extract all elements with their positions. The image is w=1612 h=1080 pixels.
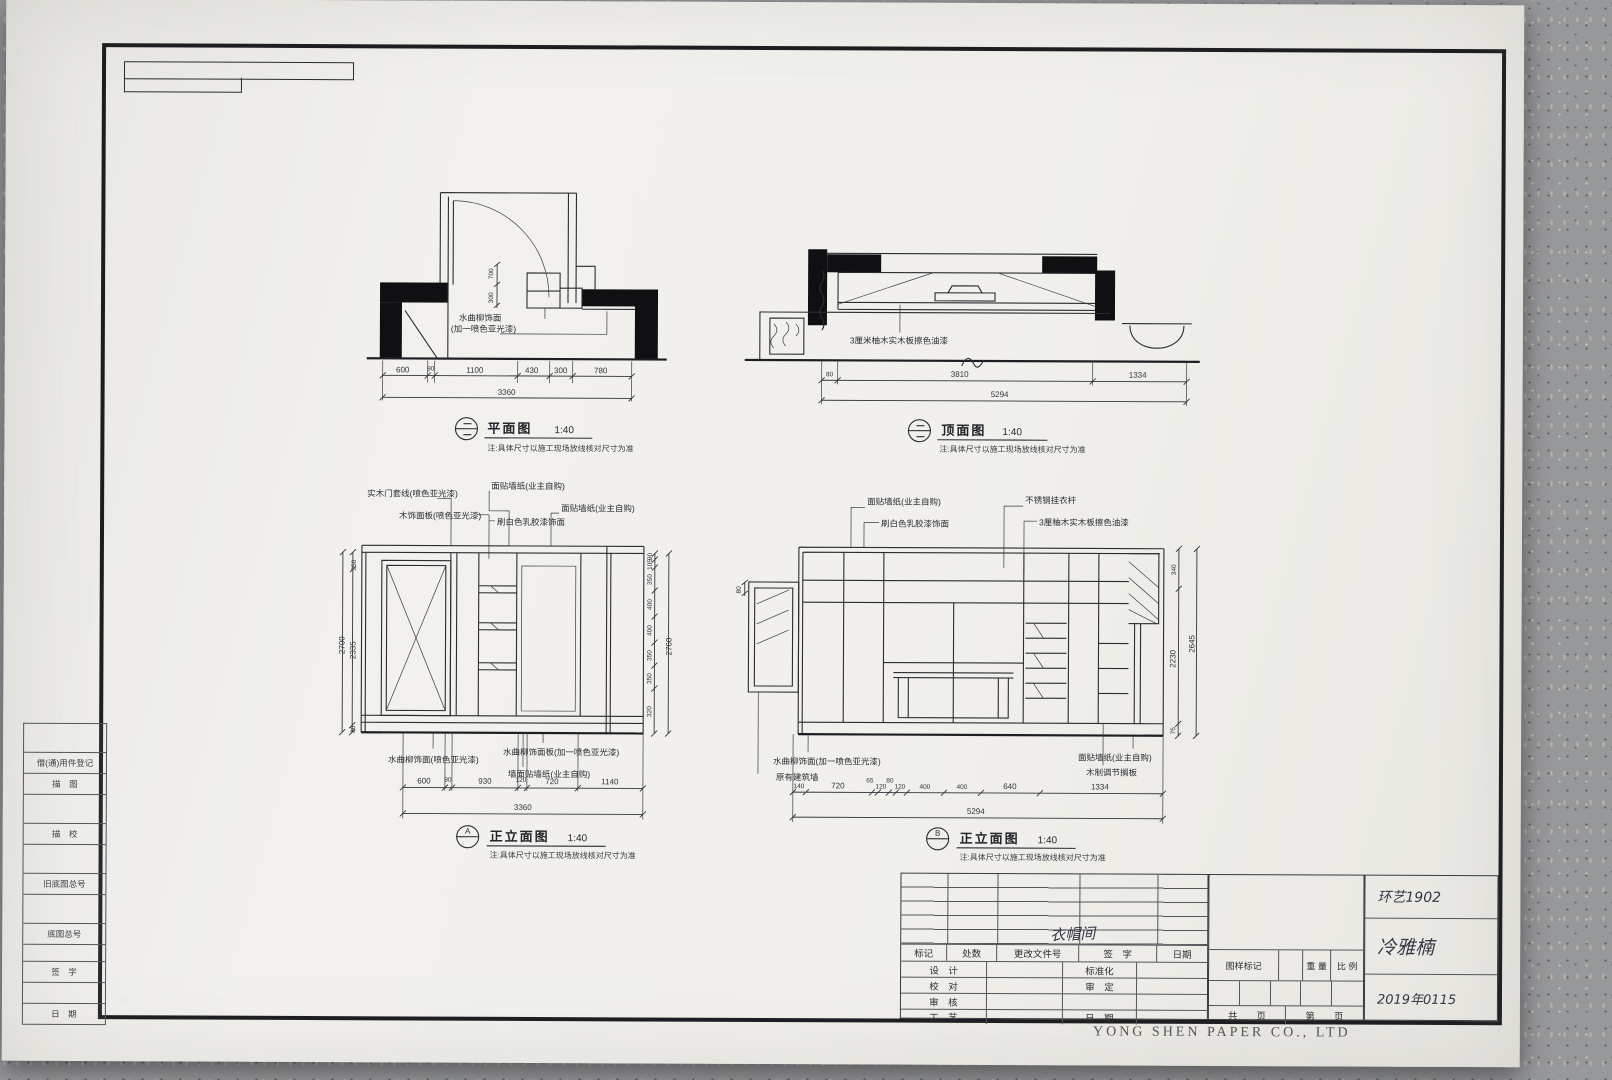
drawing-title: 正立面图	[960, 831, 1020, 846]
dim-label: 75	[1170, 727, 1177, 735]
row-label: 标准化	[1063, 962, 1137, 977]
elevation-ref-letter: B	[935, 829, 940, 838]
elevation-b-drawing: 面贴墙纸(业主自购) 刷白色乳胶漆饰面 不锈钢挂衣杆 3厘柚木实木板擦色油漆 水…	[737, 472, 1239, 894]
dim-label: 250	[351, 559, 358, 570]
dim-label: 1100	[466, 366, 484, 375]
elev-annotation: 水曲柳饰面(喷色亚光漆)	[388, 754, 479, 764]
drawing-scale: 1:40	[568, 833, 588, 844]
elevation-ref-letter: A	[465, 827, 471, 836]
dim-label: 1334	[1129, 371, 1147, 380]
dim-label: 90	[427, 366, 435, 373]
drawing-note: 注:具体尺寸以施工现场放线核对尺寸为准	[490, 850, 636, 861]
elevation-a-drawing: 实木门套线(喷色亚光漆) 木饰面板(喷色亚光漆) 面贴墙纸(业主自购) 刷白色乳…	[337, 470, 684, 892]
drawing-title: 顶面图	[941, 423, 986, 438]
dim-total-label: 2760	[664, 637, 673, 655]
dim-label: 120	[515, 777, 526, 784]
row-value	[987, 1010, 1063, 1024]
row-value	[1137, 963, 1207, 978]
handwritten-name-cell: 冷雅楠	[1365, 919, 1497, 976]
handwritten-class-cell: 环艺1902	[1365, 876, 1497, 920]
margin-label: 描 校	[52, 828, 78, 840]
pages-label: 共	[1228, 1008, 1238, 1022]
revision-header-row: 标记 处数 更改文件号 签 字 日期	[901, 944, 1207, 963]
pages-label: 页	[1334, 1008, 1344, 1022]
elev-annotation: 3厘柚木实木板擦色油漆	[1039, 517, 1129, 527]
elev-annotation: 木饰面板(喷色亚光漆)	[399, 510, 481, 520]
title-block-row: 设 计 标准化	[901, 962, 1207, 979]
title-block-revision-table: 标记 处数 更改文件号 签 字 日期 设 计 标准化 校 对 审 定 审 核 工…	[900, 873, 1209, 1020]
photo-background: 水曲柳饰面 (加一喷色亚光漆) 700 300 600 90 1100 430 …	[0, 0, 1612, 1080]
plan-ref-symbol	[455, 418, 477, 440]
row-label	[1063, 994, 1137, 1009]
dim-label: 90	[647, 552, 654, 560]
margin-label: 底图总号	[47, 928, 81, 940]
margin-label: 旧底图总号	[43, 878, 86, 890]
margin-cell	[24, 724, 106, 753]
dim-total-label: 5294	[991, 390, 1009, 399]
drawing-note: 注:具体尺寸以施工现场放线核对尺寸为准	[960, 852, 1106, 863]
margin-cell: 底图总号	[23, 924, 105, 945]
elev-annotation: 水曲柳饰面板(加一喷色亚光漆)	[503, 747, 619, 758]
blank-cell	[1301, 981, 1332, 1005]
revision-strip-box-2	[124, 77, 242, 93]
margin-cell	[24, 795, 106, 824]
margin-cell	[23, 945, 105, 962]
small-cells-row	[1209, 981, 1363, 1007]
dim-label: 140	[793, 783, 804, 790]
handwritten-date-cell: 2019年0115	[1365, 975, 1497, 1023]
title-block-right: 图样标记 重 量 比 例 共 页 第 页	[1208, 874, 1365, 1021]
margin-label: 描 图	[52, 778, 78, 790]
row-value	[987, 994, 1063, 1009]
plan-left-walls	[380, 282, 658, 359]
drawing-sheet: 水曲柳饰面 (加一喷色亚光漆) 700 300 600 90 1100 430 …	[2, 0, 1525, 1067]
row-value	[1137, 995, 1207, 1010]
dim-label: 400	[956, 784, 967, 791]
revision-header-cell: 签 字	[1079, 945, 1157, 961]
dim-label: 600	[417, 776, 431, 785]
elev-annotation: 不锈钢挂衣杆	[1025, 495, 1077, 505]
revision-header-cell: 日期	[1157, 946, 1207, 962]
elev-annotation: 面贴墙纸(业主自购)	[1078, 752, 1152, 762]
dim-label: 300	[554, 366, 568, 375]
ceiling-plan-drawing: 3厘米柚木实木板擦色油漆 80 3810 1334 5294 顶面图 1:40 …	[729, 212, 1210, 479]
title-block-blank-box	[1209, 875, 1363, 951]
pages-label: 第	[1305, 1008, 1315, 1022]
title-block-row: 审 核	[901, 994, 1207, 1011]
row-value	[987, 978, 1063, 993]
margin-label: 借(通)用件登记	[37, 757, 94, 769]
plan-annotation-line1: 水曲柳饰面	[459, 313, 502, 323]
dim-label: 1140	[601, 777, 619, 786]
dim-total-label: 5294	[967, 807, 985, 816]
dim-label: 640	[1003, 782, 1017, 791]
plan-annotation-line2: (加一喷色亚光漆)	[451, 324, 516, 334]
handwritten-room-name: 衣帽间	[1050, 922, 1096, 945]
dim-label: 930	[478, 777, 492, 786]
elev-annotation: 水曲柳饰面(加一喷色亚光漆)	[773, 756, 881, 766]
mark-weight-scale-row: 图样标记 重 量 比 例	[1209, 950, 1363, 982]
elev-annotation: 面贴墙纸(业主自购)	[561, 503, 635, 513]
drawing-scale: 1:40	[1038, 835, 1058, 846]
drawing-scale: 1:40	[554, 425, 574, 436]
dim-label: 350	[646, 673, 653, 684]
dim-label: 1334	[1091, 782, 1109, 791]
margin-label: 日 期	[51, 1008, 77, 1020]
dim-label: 65	[866, 777, 874, 784]
dim-label: 320	[646, 706, 653, 717]
dim-label: 350	[646, 650, 653, 661]
dim-label: 350	[647, 574, 654, 585]
row-label: 审 核	[901, 994, 987, 1009]
dim-label: 720	[831, 781, 845, 790]
dim-label: 80	[826, 371, 834, 378]
dim-label: 700	[488, 268, 495, 279]
row-value	[987, 962, 1063, 977]
dim-label: 80	[886, 778, 894, 785]
paper-brand-text: YONG SHEN PAPER CO., LTD	[1032, 1024, 1412, 1042]
pages-cell: 第 页	[1286, 1006, 1363, 1024]
dim-label: 430	[525, 366, 539, 375]
blank-cell	[1332, 981, 1363, 1005]
elev-annotation: 实木门套线(喷色亚光漆)	[367, 488, 458, 498]
margin-label: 签 字	[51, 966, 77, 978]
revision-header-cell: 更改文件号	[997, 945, 1079, 961]
margin-cell	[23, 895, 105, 924]
handwritten-class: 环艺1902	[1377, 887, 1441, 907]
elevation-ref-symbol: A	[457, 826, 479, 848]
title-block-row: 校 对 审 定	[901, 978, 1207, 995]
elev-a-linework	[339, 490, 672, 819]
row-label: 日 期	[1063, 1010, 1137, 1024]
margin-cell	[24, 845, 106, 874]
title-block-row: 工 艺 日 期	[901, 1010, 1207, 1025]
elev-annotation: 刷白色乳胶漆饰面	[881, 519, 950, 529]
dim-total-label: 3360	[514, 803, 532, 812]
margin-cell: 借(通)用件登记	[24, 753, 106, 774]
plan-right-walls	[808, 249, 1115, 326]
plan-view-drawing: 水曲柳饰面 (加一喷色亚光漆) 700 300 600 90 1100 430 …	[354, 160, 685, 476]
row-value	[1137, 1011, 1207, 1025]
margin-cell: 签 字	[23, 962, 105, 983]
handwritten-date: 2019年0115	[1377, 989, 1456, 1008]
dim-label: 600	[396, 365, 410, 374]
dim-label: 340	[1171, 564, 1178, 575]
dim-total-label: 2645	[1187, 634, 1196, 652]
elev-annotation: 面贴墙纸(业主自购)	[867, 496, 941, 506]
dim-label: 400	[919, 784, 930, 791]
dim-label: 400	[647, 625, 654, 636]
drawing-note: 注:具体尺寸以施工现场放线核对尺寸为准	[939, 444, 1085, 455]
dim-total-label: 2700	[337, 636, 346, 654]
plan-ref-symbol	[908, 420, 930, 442]
revision-header-cell: 标记	[901, 945, 947, 961]
pages-label: 页	[1256, 1008, 1266, 1022]
drawing-scale: 1:40	[1002, 427, 1022, 438]
margin-cell: 描 校	[24, 824, 106, 845]
row-value	[1137, 979, 1207, 994]
row-label: 审 定	[1063, 978, 1137, 993]
dim-label: 90	[444, 777, 452, 784]
revision-header-cell: 处数	[947, 945, 997, 961]
drawing-title: 正立面图	[490, 829, 550, 844]
dim-label: 780	[594, 366, 608, 375]
dim-label: 80	[736, 586, 743, 594]
dim-label: 720	[545, 777, 559, 786]
blank-cell	[1240, 981, 1271, 1005]
dim-label: 400	[647, 599, 654, 610]
margin-cell: 描 图	[24, 774, 106, 795]
blank-cell	[1279, 950, 1303, 980]
dim-label: 3810	[951, 370, 969, 379]
margin-cell: 日 期	[23, 1004, 105, 1025]
pages-cell: 共 页	[1209, 1006, 1286, 1024]
dim-label: 80	[350, 725, 357, 733]
scale-label: 比 例	[1331, 950, 1363, 980]
elev-annotation: 原有建筑墙	[776, 772, 819, 782]
dim-label: 300	[488, 292, 495, 303]
elev-annotation: 面贴墙纸(业主自购)	[491, 481, 565, 491]
elev-annotation: 木制调节搁板	[1086, 767, 1138, 777]
blank-cell	[1209, 981, 1240, 1005]
dim-label: 120	[894, 784, 905, 791]
row-label: 校 对	[901, 978, 987, 993]
row-label: 设 计	[901, 962, 987, 977]
elev-annotation: 刷白色乳胶漆饰面	[497, 517, 566, 527]
dim-label: 2230	[1168, 649, 1177, 667]
dim-label: 105	[647, 559, 654, 570]
drawing-title: 平面图	[487, 421, 532, 436]
margin-cell	[23, 983, 105, 1004]
dim-label: 2335	[348, 641, 357, 659]
left-margin-register: 借(通)用件登记 描 图 描 校 旧底图总号 底图总号 签 字 日 期	[22, 723, 107, 1025]
mark-label: 图样标记	[1209, 950, 1279, 980]
pages-row: 共 页 第 页	[1209, 1006, 1363, 1025]
row-label: 工 艺	[901, 1010, 987, 1024]
margin-cell: 旧底图总号	[23, 874, 105, 895]
weight-label: 重 量	[1303, 950, 1331, 980]
dim-label: 120	[875, 783, 886, 790]
dim-total-label: 3360	[498, 388, 516, 397]
title-block-far-right: 环艺1902 冷雅楠 2019年0115	[1364, 875, 1499, 1022]
blank-cell	[1271, 981, 1302, 1005]
drawing-note: 注:具体尺寸以施工现场放线核对尺寸为准	[487, 443, 633, 454]
handwritten-name: 冷雅楠	[1377, 933, 1434, 960]
ceiling-annotation: 3厘米柚木实木板擦色油漆	[850, 335, 949, 345]
elevation-ref-symbol: B	[927, 828, 949, 850]
